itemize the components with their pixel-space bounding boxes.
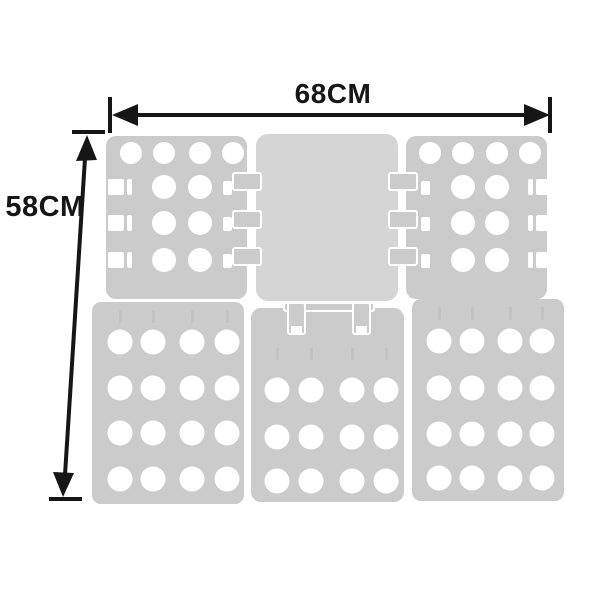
height-dimension-bottom-tick — [49, 497, 82, 501]
fold-hole — [451, 211, 475, 235]
product-dimension-diagram: 68CM 58CM — [0, 0, 600, 600]
fold-hole — [451, 175, 475, 199]
fold-hole — [152, 248, 176, 272]
board — [92, 134, 564, 504]
fold-hole — [265, 425, 290, 450]
crease-mark — [191, 310, 194, 323]
crease-mark — [509, 307, 512, 320]
fold-hole — [427, 376, 452, 401]
fold-hole — [299, 378, 324, 403]
edge-slot — [536, 179, 552, 195]
hinge-tab — [389, 211, 417, 228]
edge-slot — [528, 179, 533, 195]
fold-hole — [452, 142, 474, 164]
edge-slot — [528, 215, 533, 231]
fold-hole — [180, 467, 205, 492]
crease-mark — [385, 348, 388, 360]
hinge-tab-slot — [291, 326, 302, 335]
crease-mark — [438, 307, 441, 320]
fold-hole — [108, 467, 133, 492]
fold-hole — [374, 425, 399, 450]
fold-hole — [152, 175, 176, 199]
fold-hole — [460, 466, 485, 491]
fold-hole — [265, 378, 290, 403]
fold-hole — [153, 142, 175, 164]
panel-top-center-body — [256, 134, 398, 301]
width-dimension-label: 68CM — [295, 78, 372, 109]
fold-hole — [485, 248, 509, 272]
hinge-tab — [389, 173, 417, 190]
edge-slot — [127, 252, 132, 268]
edge-slot — [108, 179, 124, 195]
fold-hole — [530, 466, 555, 491]
fold-hole — [189, 142, 211, 164]
crease-mark — [310, 348, 313, 360]
panel-top-left — [106, 136, 247, 299]
fold-hole — [265, 469, 290, 494]
width-dimension: 68CM — [108, 78, 552, 133]
arrow-right-icon — [524, 104, 550, 126]
height-dimension: 58CM — [5, 130, 105, 501]
fold-hole — [152, 211, 176, 235]
crease-mark — [119, 310, 122, 323]
fold-hole — [299, 469, 324, 494]
hinge-tab — [233, 211, 261, 228]
folding-board-illustration: 68CM 58CM — [0, 0, 600, 600]
fold-hole — [180, 376, 205, 401]
fold-hole — [340, 425, 365, 450]
crease-mark — [226, 310, 229, 323]
panel-top-right — [406, 136, 552, 299]
crease-mark — [152, 310, 155, 323]
edge-slot — [223, 254, 232, 268]
panel-bottom-left — [92, 302, 244, 504]
fold-hole — [427, 422, 452, 447]
fold-hole — [188, 175, 212, 199]
arrow-down-icon — [53, 472, 74, 497]
fold-hole — [340, 469, 365, 494]
width-dimension-left-tick — [108, 97, 112, 133]
fold-hole — [427, 329, 452, 354]
crease-mark — [541, 307, 544, 320]
fold-hole — [180, 330, 205, 355]
edge-slot — [108, 215, 124, 231]
height-dimension-top-tick — [72, 130, 105, 134]
fold-hole — [222, 142, 244, 164]
panel-bottom-center — [251, 308, 404, 502]
edge-slot — [127, 215, 132, 231]
fold-hole — [215, 376, 240, 401]
edge-slot — [421, 181, 430, 195]
fold-hole — [460, 422, 485, 447]
fold-hole — [141, 330, 166, 355]
fold-hole — [498, 329, 523, 354]
fold-hole — [427, 466, 452, 491]
fold-hole — [460, 329, 485, 354]
edge-slot — [536, 215, 552, 231]
fold-hole — [215, 421, 240, 446]
fold-hole — [180, 421, 205, 446]
fold-hole — [485, 175, 509, 199]
fold-hole — [120, 142, 142, 164]
panel-top-center — [256, 134, 398, 301]
fold-hole — [530, 329, 555, 354]
hinge-tab — [389, 248, 417, 265]
crease-mark — [351, 348, 354, 360]
fold-hole — [188, 248, 212, 272]
fold-hole — [460, 376, 485, 401]
crease-mark — [276, 348, 279, 360]
arrow-up-icon — [76, 135, 97, 161]
fold-hole — [108, 330, 133, 355]
fold-hole — [141, 421, 166, 446]
edge-slot — [223, 217, 232, 231]
fold-hole — [519, 142, 541, 164]
fold-hole — [188, 211, 212, 235]
fold-hole — [419, 142, 441, 164]
fold-hole — [215, 330, 240, 355]
hinge-tab — [233, 173, 261, 190]
fold-hole — [215, 467, 240, 492]
arrow-left-icon — [112, 104, 138, 126]
edge-slot — [223, 181, 232, 195]
edge-slot — [108, 252, 124, 268]
fold-hole — [108, 376, 133, 401]
fold-hole — [498, 422, 523, 447]
fold-hole — [498, 376, 523, 401]
height-dimension-label: 58CM — [5, 191, 84, 223]
edge-slot — [421, 217, 430, 231]
fold-hole — [530, 376, 555, 401]
fold-hole — [486, 142, 508, 164]
edge-slot — [127, 179, 132, 195]
edge-slot — [536, 252, 552, 268]
fold-hole — [374, 378, 399, 403]
fold-hole — [485, 211, 509, 235]
edge-slot — [421, 254, 430, 268]
crease-mark — [471, 307, 474, 320]
fold-hole — [374, 469, 399, 494]
edge-slot — [528, 252, 533, 268]
panel-bottom-right — [412, 299, 564, 501]
fold-hole — [108, 421, 133, 446]
fold-hole — [451, 248, 475, 272]
fold-hole — [340, 378, 365, 403]
fold-hole — [530, 422, 555, 447]
hinge-tab-slot — [356, 326, 367, 335]
fold-hole — [498, 466, 523, 491]
fold-hole — [141, 467, 166, 492]
hinge-tab — [233, 248, 261, 265]
fold-hole — [141, 376, 166, 401]
fold-hole — [299, 425, 324, 450]
